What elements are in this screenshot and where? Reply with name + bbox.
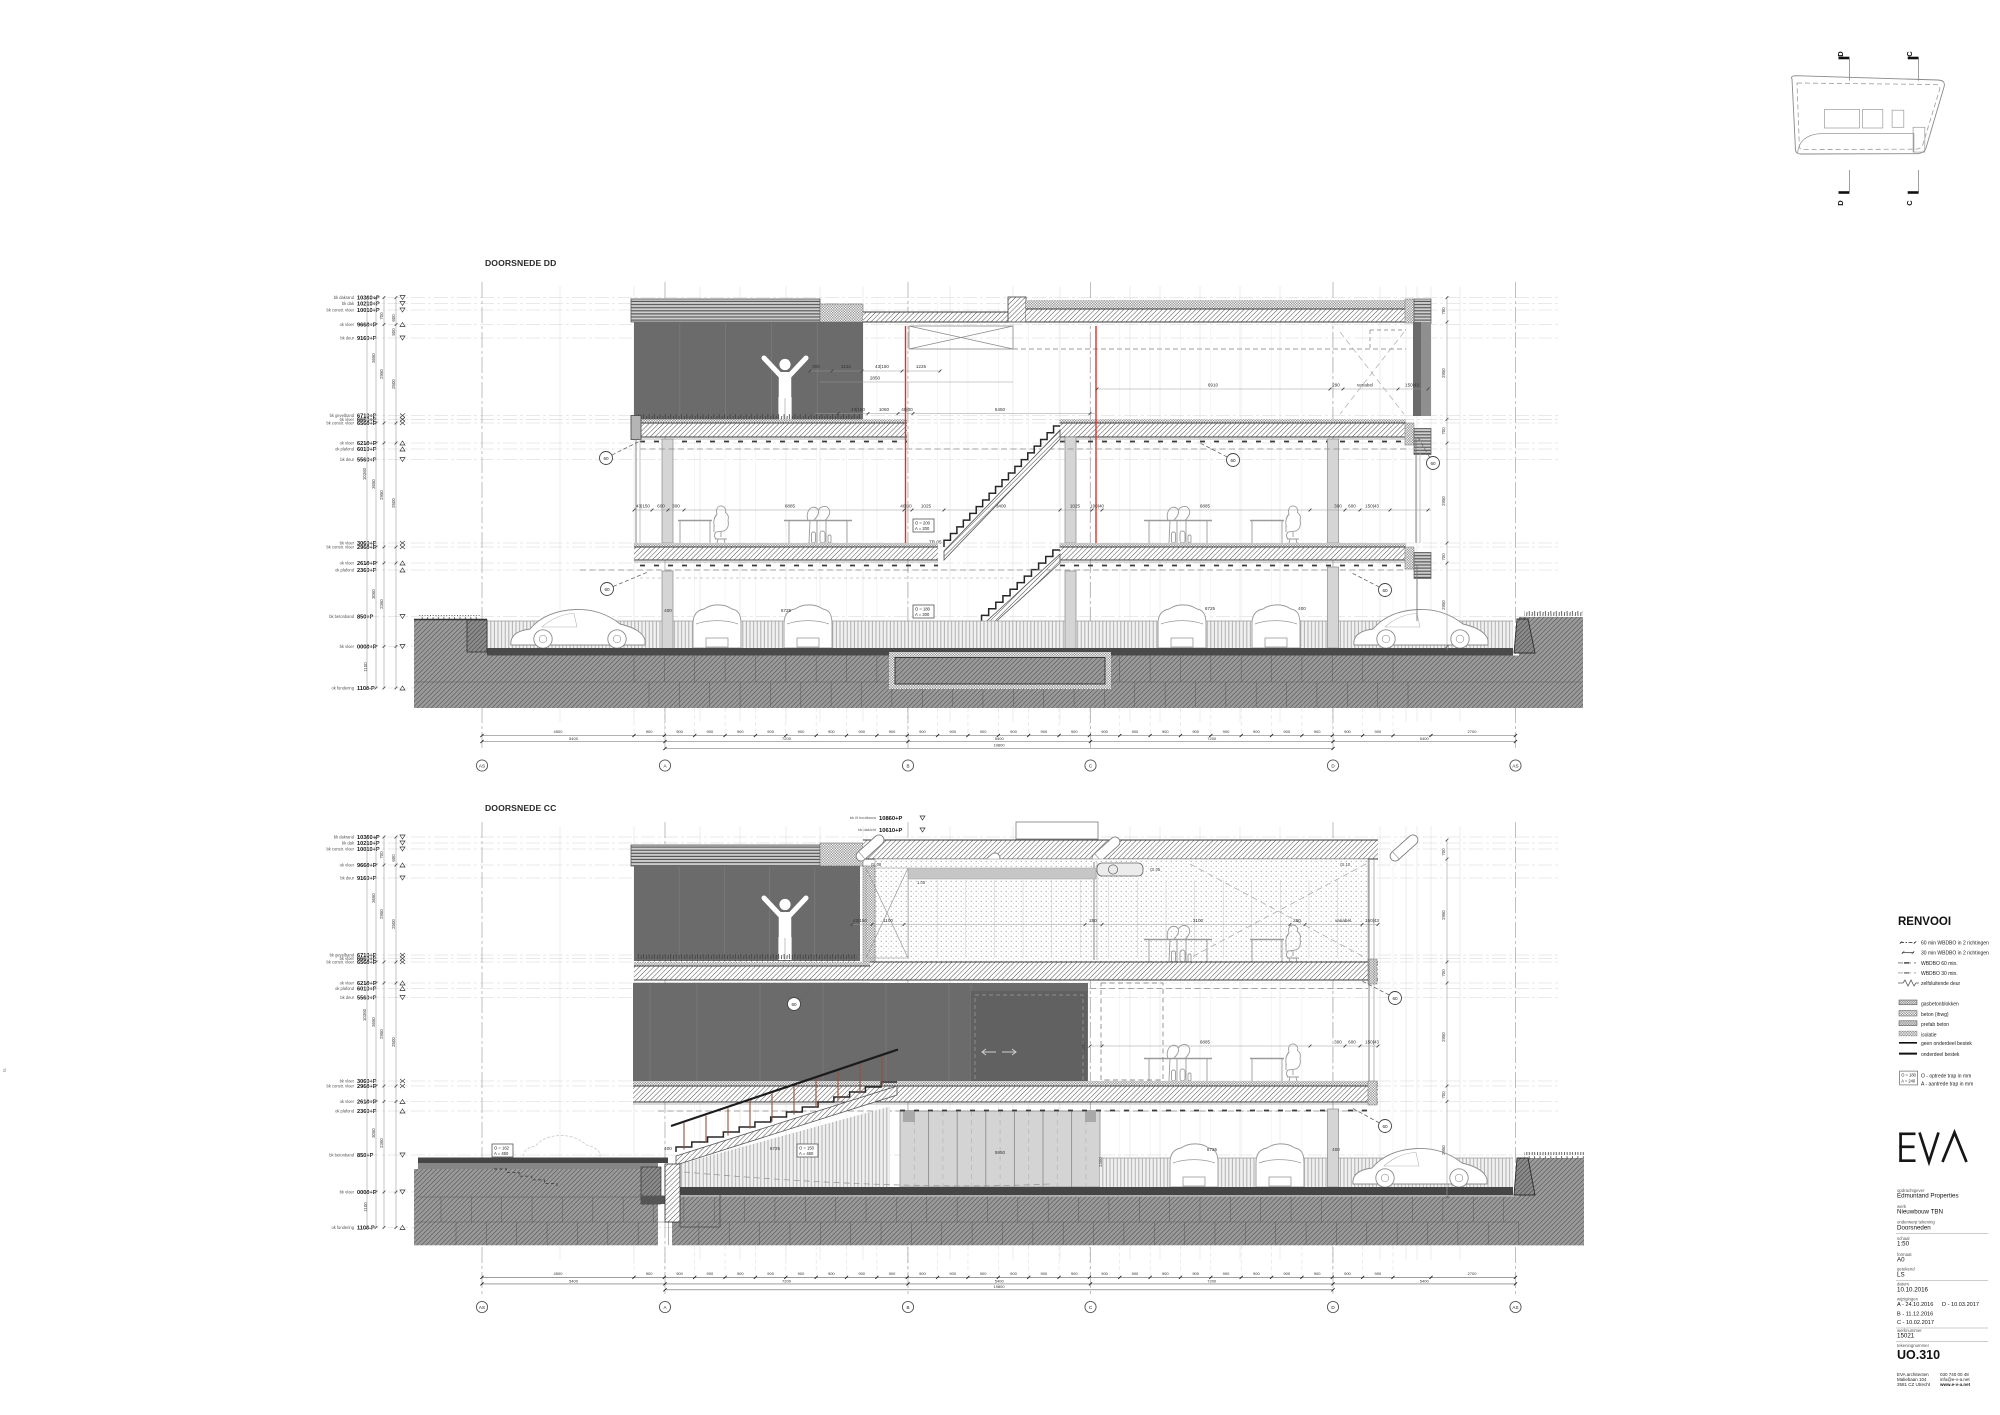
svg-text:bk betonband: bk betonband bbox=[329, 1153, 355, 1158]
svg-text:isolatie: isolatie bbox=[1921, 1032, 1937, 1038]
svg-text:bk vloer: bk vloer bbox=[340, 1190, 355, 1195]
svg-text:6910: 6910 bbox=[1208, 383, 1219, 388]
svg-text:2360: 2360 bbox=[379, 1138, 384, 1148]
svg-text:10010+P: 10010+P bbox=[357, 308, 380, 314]
svg-text:A = 240: A = 240 bbox=[1901, 1079, 1916, 1084]
svg-text:O = 162: O = 162 bbox=[494, 1146, 510, 1151]
svg-text:3650: 3650 bbox=[371, 353, 376, 363]
svg-text:150|43: 150|43 bbox=[1365, 504, 1379, 509]
svg-text:2950: 2950 bbox=[1441, 368, 1446, 378]
svg-text:ok plafond: ok plafond bbox=[335, 447, 355, 452]
svg-text:900: 900 bbox=[889, 1271, 896, 1276]
svg-text:900: 900 bbox=[828, 1271, 835, 1276]
svg-text:900: 900 bbox=[676, 1271, 683, 1276]
svg-text:2520: 2520 bbox=[1081, 1042, 1086, 1052]
svg-text:bk deur: bk deur bbox=[340, 995, 354, 1000]
svg-text:variabel: variabel bbox=[1335, 918, 1351, 923]
svg-text:19800: 19800 bbox=[993, 743, 1005, 748]
svg-text:gasbetonblokken: gasbetonblokken bbox=[1921, 1002, 1959, 1008]
svg-text:2700: 2700 bbox=[1468, 1271, 1478, 1276]
svg-text:40|00: 40|00 bbox=[901, 407, 913, 412]
svg-text:5400: 5400 bbox=[1420, 736, 1430, 741]
svg-text:O = 200: O = 200 bbox=[915, 521, 931, 526]
svg-text:10210+P: 10210+P bbox=[357, 302, 380, 308]
svg-text:60: 60 bbox=[1392, 996, 1398, 1001]
svg-text:bk constr. vloer: bk constr. vloer bbox=[326, 1084, 354, 1089]
svg-text:7200: 7200 bbox=[1207, 1278, 1217, 1283]
svg-text:400: 400 bbox=[1332, 1147, 1340, 1152]
svg-text:onderdeel bestek: onderdeel bestek bbox=[1921, 1052, 1960, 1058]
svg-text:C: C bbox=[1905, 51, 1914, 57]
svg-text:2950: 2950 bbox=[1441, 600, 1446, 610]
svg-text:900: 900 bbox=[1101, 729, 1108, 734]
svg-text:zelfsluitende deur: zelfsluitende deur bbox=[1921, 981, 1961, 987]
svg-text:5400: 5400 bbox=[569, 1278, 579, 1283]
svg-text:850+P: 850+P bbox=[357, 1153, 374, 1159]
svg-text:900: 900 bbox=[798, 729, 805, 734]
svg-text:900: 900 bbox=[1192, 1271, 1199, 1276]
svg-text:bk deur: bk deur bbox=[340, 336, 354, 341]
svg-text:60: 60 bbox=[1430, 461, 1436, 466]
svg-text:700: 700 bbox=[1441, 848, 1446, 856]
svg-text:900: 900 bbox=[1010, 1271, 1017, 1276]
svg-text:GI.10: GI.10 bbox=[1340, 862, 1351, 867]
svg-text:D - 10.03.2017: D - 10.03.2017 bbox=[1942, 1302, 1979, 1308]
svg-text:400: 400 bbox=[1298, 606, 1306, 611]
svg-text:bk dakrand: bk dakrand bbox=[334, 295, 355, 300]
svg-text:400: 400 bbox=[664, 1146, 672, 1151]
svg-text:bk betonband: bk betonband bbox=[329, 614, 355, 619]
svg-text:300: 300 bbox=[1334, 1040, 1342, 1045]
svg-text:60: 60 bbox=[791, 1002, 797, 1007]
svg-text:bk dak: bk dak bbox=[342, 301, 355, 306]
svg-text:6885: 6885 bbox=[1200, 1040, 1211, 1045]
svg-text:2500: 2500 bbox=[391, 919, 396, 929]
svg-text:1.05: 1.05 bbox=[917, 880, 926, 885]
svg-text:WBDBO 60 min.: WBDBO 60 min. bbox=[1921, 961, 1958, 967]
svg-text:60: 60 bbox=[1230, 458, 1236, 463]
svg-text:250: 250 bbox=[1293, 918, 1301, 923]
svg-text:2500: 2500 bbox=[391, 498, 396, 508]
svg-text:beton (ihwg): beton (ihwg) bbox=[1921, 1012, 1949, 1018]
svg-text:300: 300 bbox=[672, 504, 680, 509]
svg-text:250: 250 bbox=[1089, 918, 1097, 923]
svg-text:2950: 2950 bbox=[1441, 1032, 1446, 1042]
svg-text:700: 700 bbox=[379, 851, 384, 859]
svg-text:700: 700 bbox=[1441, 427, 1446, 435]
svg-text:A = 460: A = 460 bbox=[799, 1151, 814, 1156]
svg-text:60 min WBDBO in 2 richtingen: 60 min WBDBO in 2 richtingen bbox=[1921, 941, 1989, 947]
svg-text:ok plafond: ok plafond bbox=[335, 568, 355, 573]
svg-text:ok plafond: ok plafond bbox=[335, 1109, 355, 1114]
svg-text:60: 60 bbox=[1382, 1124, 1388, 1129]
svg-text:bk vloer: bk vloer bbox=[340, 644, 355, 649]
svg-text:900: 900 bbox=[737, 729, 744, 734]
svg-text:900: 900 bbox=[1223, 1271, 1230, 1276]
svg-text:GI.05: GI.05 bbox=[1150, 867, 1161, 872]
svg-text:ok plafond: ok plafond bbox=[335, 986, 355, 991]
svg-text:40|00: 40|00 bbox=[900, 504, 912, 509]
svg-text:4500: 4500 bbox=[554, 1271, 564, 1276]
svg-text:900: 900 bbox=[1314, 729, 1321, 734]
svg-text:1100: 1100 bbox=[363, 662, 368, 672]
svg-text:900: 900 bbox=[949, 1271, 956, 1276]
svg-text:DOORSNEDE CC: DOORSNEDE CC bbox=[485, 803, 556, 813]
svg-text:2700: 2700 bbox=[1468, 729, 1478, 734]
svg-text:ok vloer: ok vloer bbox=[340, 1099, 355, 1104]
svg-text:bk deur: bk deur bbox=[340, 457, 354, 462]
svg-text:A - 24.10.2016: A - 24.10.2016 bbox=[1897, 1302, 1933, 1308]
svg-text:1060: 1060 bbox=[879, 407, 890, 412]
svg-text:3650: 3650 bbox=[371, 479, 376, 489]
svg-text:3650: 3650 bbox=[371, 1017, 376, 1027]
svg-text:6725: 6725 bbox=[1205, 606, 1216, 611]
svg-text:1:50: 1:50 bbox=[1897, 1241, 1910, 1248]
svg-text:AS: AS bbox=[1512, 763, 1518, 768]
svg-text:2850: 2850 bbox=[870, 376, 881, 381]
svg-text:900: 900 bbox=[798, 1271, 805, 1276]
svg-text:5950: 5950 bbox=[995, 1150, 1006, 1155]
svg-text:300: 300 bbox=[812, 364, 820, 369]
svg-text:D: D bbox=[1836, 200, 1845, 206]
svg-text:900: 900 bbox=[1041, 1271, 1048, 1276]
svg-text:900: 900 bbox=[1344, 729, 1351, 734]
svg-text:900: 900 bbox=[1162, 729, 1169, 734]
svg-text:A = 200: A = 200 bbox=[915, 526, 930, 531]
svg-text:geen onderdeel bestek: geen onderdeel bestek bbox=[1921, 1041, 1972, 1047]
svg-text:900: 900 bbox=[1253, 1271, 1260, 1276]
svg-text:WBDBO 30 min.: WBDBO 30 min. bbox=[1921, 971, 1958, 977]
svg-text:15021: 15021 bbox=[1897, 1333, 1915, 1340]
svg-text:900: 900 bbox=[980, 729, 987, 734]
svg-text:bk dak: bk dak bbox=[342, 841, 355, 846]
svg-text:900: 900 bbox=[858, 1271, 865, 1276]
svg-text:600: 600 bbox=[1348, 1040, 1356, 1045]
svg-text:O - optrede trap in mm: O - optrede trap in mm bbox=[1921, 1073, 1971, 1079]
svg-text:prefab beton: prefab beton bbox=[1921, 1022, 1949, 1028]
svg-text:GI.08: GI.08 bbox=[871, 862, 882, 867]
svg-text:5400: 5400 bbox=[995, 1278, 1005, 1283]
svg-text:900: 900 bbox=[767, 729, 774, 734]
svg-text:3650: 3650 bbox=[371, 893, 376, 903]
svg-text:O = 180: O = 180 bbox=[915, 607, 931, 612]
svg-text:900: 900 bbox=[767, 1271, 774, 1276]
svg-text:900: 900 bbox=[676, 729, 683, 734]
svg-text:1100: 1100 bbox=[883, 918, 893, 923]
svg-text:www.e-v-a.net: www.e-v-a.net bbox=[1939, 1382, 1971, 1387]
svg-text:ok vloer: ok vloer bbox=[340, 981, 355, 986]
svg-text:C: C bbox=[1905, 200, 1914, 206]
svg-text:2950: 2950 bbox=[1441, 496, 1446, 506]
svg-text:bk constr. vloer: bk constr. vloer bbox=[326, 421, 354, 426]
svg-text:DOORSNEDE DD: DOORSNEDE DD bbox=[485, 258, 556, 268]
svg-text:AS: AS bbox=[479, 763, 485, 768]
svg-text:19800: 19800 bbox=[993, 1284, 1005, 1289]
svg-text:ok fundering: ok fundering bbox=[331, 1225, 354, 1230]
svg-text:900: 900 bbox=[1010, 729, 1017, 734]
svg-text:10360: 10360 bbox=[362, 1008, 367, 1021]
svg-text:O = 180: O = 180 bbox=[1901, 1073, 1916, 1078]
svg-text:ok vloer: ok vloer bbox=[340, 322, 355, 327]
svg-text:2950: 2950 bbox=[1441, 1145, 1446, 1155]
svg-text:900: 900 bbox=[1071, 729, 1078, 734]
svg-text:900: 900 bbox=[1283, 729, 1290, 734]
svg-text:30 min WBDBO in 2 richtingen: 30 min WBDBO in 2 richtingen bbox=[1921, 951, 1989, 957]
svg-text:43|150: 43|150 bbox=[875, 364, 889, 369]
svg-text:2950: 2950 bbox=[379, 490, 384, 500]
svg-text:700: 700 bbox=[1441, 553, 1446, 561]
svg-text:290: 290 bbox=[1332, 383, 1340, 388]
svg-text:variabel: variabel bbox=[1357, 383, 1373, 388]
svg-text:A = 450: A = 450 bbox=[494, 1151, 509, 1156]
svg-text:RENVOOI: RENVOOI bbox=[1898, 916, 1951, 928]
svg-text:900: 900 bbox=[1374, 729, 1381, 734]
svg-text:900: 900 bbox=[1253, 729, 1260, 734]
svg-text:3060: 3060 bbox=[371, 589, 376, 599]
svg-text:43|150: 43|150 bbox=[851, 407, 865, 412]
svg-text:bk constr. vloer: bk constr. vloer bbox=[326, 545, 354, 550]
svg-text:900: 900 bbox=[1223, 729, 1230, 734]
svg-text:A = 200: A = 200 bbox=[915, 612, 930, 617]
svg-text:7200: 7200 bbox=[782, 1278, 792, 1283]
svg-text:900: 900 bbox=[1071, 1271, 1078, 1276]
svg-text:ok vloer: ok vloer bbox=[340, 561, 355, 566]
svg-text:10010+P: 10010+P bbox=[357, 847, 380, 853]
svg-text:10610+P: 10610+P bbox=[879, 828, 903, 834]
svg-text:Doorsneden: Doorsneden bbox=[1897, 1224, 1931, 1231]
svg-text:900: 900 bbox=[828, 729, 835, 734]
svg-text:10.10.2016: 10.10.2016 bbox=[1897, 1286, 1929, 1293]
svg-text:10360: 10360 bbox=[362, 467, 367, 480]
svg-text:900: 900 bbox=[1374, 1271, 1381, 1276]
svg-text:B: B bbox=[906, 1305, 909, 1310]
svg-text:6885: 6885 bbox=[785, 504, 796, 509]
svg-text:bk constr. vloer: bk constr. vloer bbox=[326, 847, 354, 852]
svg-text:900: 900 bbox=[858, 729, 865, 734]
svg-text:6725: 6725 bbox=[781, 608, 792, 613]
svg-text:3060: 3060 bbox=[371, 1128, 376, 1138]
svg-text:bk dakrand: bk dakrand bbox=[334, 835, 355, 840]
svg-text:1025: 1025 bbox=[921, 504, 932, 509]
svg-text:1225: 1225 bbox=[916, 364, 927, 369]
svg-text:150|43: 150|43 bbox=[1405, 383, 1419, 388]
svg-text:AS: AS bbox=[1512, 1305, 1518, 1310]
svg-text:900: 900 bbox=[1344, 1271, 1351, 1276]
svg-text:900: 900 bbox=[1192, 729, 1199, 734]
svg-text:2500: 2500 bbox=[391, 1037, 396, 1047]
svg-text:bk constr. vloer: bk constr. vloer bbox=[326, 308, 354, 313]
svg-text:600: 600 bbox=[1348, 504, 1356, 509]
svg-text:2950: 2950 bbox=[1441, 910, 1446, 920]
svg-text:bk l/f houtbouw: bk l/f houtbouw bbox=[850, 815, 876, 820]
svg-text:150|43: 150|43 bbox=[1365, 918, 1379, 923]
svg-text:Nieuwbouw TBN: Nieuwbouw TBN bbox=[1897, 1208, 1943, 1215]
svg-text:B: B bbox=[906, 763, 909, 768]
svg-text:bk dak/cht: bk dak/cht bbox=[858, 827, 877, 832]
svg-text:6725: 6725 bbox=[770, 1146, 781, 1151]
svg-text:600: 600 bbox=[657, 504, 665, 509]
svg-text:bk deur: bk deur bbox=[340, 876, 354, 881]
svg-text:900: 900 bbox=[646, 729, 653, 734]
svg-text:1025: 1025 bbox=[1070, 504, 1081, 509]
svg-text:B - 11.12.2016: B - 11.12.2016 bbox=[1897, 1312, 1933, 1318]
svg-text:5400: 5400 bbox=[995, 736, 1005, 741]
svg-text:900: 900 bbox=[1162, 1271, 1169, 1276]
svg-text:3100: 3100 bbox=[1193, 918, 1204, 923]
svg-text:900: 900 bbox=[919, 729, 926, 734]
svg-text:6725: 6725 bbox=[1207, 1147, 1218, 1152]
svg-text:3581 CZ Utrecht: 3581 CZ Utrecht bbox=[1897, 1382, 1931, 1387]
svg-text:900: 900 bbox=[1132, 729, 1139, 734]
svg-text:900: 900 bbox=[1283, 1271, 1290, 1276]
svg-text:2500: 2500 bbox=[391, 379, 396, 389]
svg-text:900: 900 bbox=[949, 729, 956, 734]
svg-text:10860+P: 10860+P bbox=[879, 816, 903, 822]
svg-text:400: 400 bbox=[664, 608, 672, 613]
svg-text:700: 700 bbox=[1441, 969, 1446, 977]
svg-text:2950: 2950 bbox=[379, 909, 384, 919]
svg-text:500: 500 bbox=[391, 328, 396, 336]
svg-text:5450: 5450 bbox=[995, 407, 1006, 412]
svg-text:7200: 7200 bbox=[1207, 736, 1217, 741]
svg-text:900: 900 bbox=[889, 729, 896, 734]
svg-text:900: 900 bbox=[980, 1271, 987, 1276]
svg-text:900: 900 bbox=[707, 1271, 714, 1276]
svg-text:5400: 5400 bbox=[569, 736, 579, 741]
svg-text:wijzigingen: wijzigingen bbox=[1897, 1297, 1919, 1302]
svg-text:2360: 2360 bbox=[379, 599, 384, 609]
svg-text:ok fundering: ok fundering bbox=[331, 686, 354, 691]
svg-text:900: 900 bbox=[919, 1271, 926, 1276]
svg-text:900: 900 bbox=[1314, 1271, 1321, 1276]
svg-text:1132: 1132 bbox=[841, 364, 851, 369]
svg-text:300: 300 bbox=[1334, 504, 1342, 509]
svg-text:900: 900 bbox=[1041, 729, 1048, 734]
svg-text:O = 150: O = 150 bbox=[799, 1146, 815, 1151]
svg-text:60: 60 bbox=[1382, 588, 1388, 593]
svg-text:900: 900 bbox=[646, 1271, 653, 1276]
svg-text:C - 10.02.2017: C - 10.02.2017 bbox=[1897, 1320, 1934, 1326]
svg-text:Edmuntand Properties: Edmuntand Properties bbox=[1897, 1192, 1959, 1199]
svg-text:ok vloer: ok vloer bbox=[340, 441, 355, 446]
svg-text:6885: 6885 bbox=[1200, 504, 1211, 509]
svg-text:2360: 2360 bbox=[1098, 1157, 1103, 1167]
svg-text:700: 700 bbox=[379, 312, 384, 320]
svg-text:700: 700 bbox=[1441, 1091, 1446, 1099]
svg-text:7200: 7200 bbox=[782, 736, 792, 741]
svg-text:bk constr. vloer: bk constr. vloer bbox=[326, 960, 354, 965]
svg-text:780: 780 bbox=[1441, 307, 1446, 315]
svg-text:A0: A0 bbox=[1897, 1257, 1905, 1264]
svg-text:1100: 1100 bbox=[363, 1202, 368, 1212]
svg-text:60: 60 bbox=[604, 587, 610, 592]
svg-text:4500: 4500 bbox=[554, 729, 564, 734]
svg-text:600: 600 bbox=[391, 314, 396, 322]
svg-text:900: 900 bbox=[1101, 1271, 1108, 1276]
svg-text:LS: LS bbox=[1897, 1272, 1905, 1279]
svg-text:UO.310: UO.310 bbox=[1897, 1348, 1940, 1362]
svg-text:5400: 5400 bbox=[1420, 1278, 1430, 1283]
svg-text:2950: 2950 bbox=[379, 1029, 384, 1039]
svg-text:900: 900 bbox=[707, 729, 714, 734]
svg-text:2950: 2950 bbox=[379, 369, 384, 379]
svg-text:900: 900 bbox=[1132, 1271, 1139, 1276]
svg-text:150|43: 150|43 bbox=[1365, 1040, 1379, 1045]
svg-text:A - aantrede trap in mm: A - aantrede trap in mm bbox=[1921, 1082, 1973, 1088]
svg-text:43|150: 43|150 bbox=[636, 504, 650, 509]
svg-text:43|150: 43|150 bbox=[853, 918, 867, 923]
svg-text:60: 60 bbox=[603, 456, 609, 461]
svg-text:600: 600 bbox=[391, 854, 396, 862]
svg-text:850+P: 850+P bbox=[357, 615, 374, 621]
svg-text:100|40: 100|40 bbox=[1090, 504, 1104, 509]
svg-text:AS: AS bbox=[479, 1305, 485, 1310]
svg-text:900: 900 bbox=[737, 1271, 744, 1276]
svg-text:ok vloer: ok vloer bbox=[340, 863, 355, 868]
svg-text:D: D bbox=[1836, 51, 1845, 57]
